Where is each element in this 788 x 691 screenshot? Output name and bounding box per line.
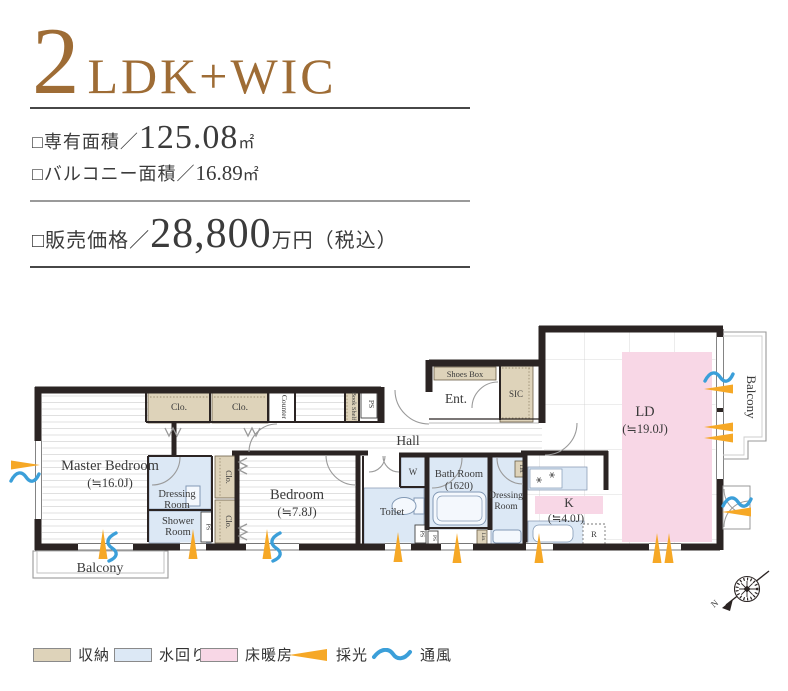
balcony-left-label: Balcony: [77, 561, 124, 576]
ld-floor-heating: [622, 352, 712, 542]
daylight-legend-icon: [287, 648, 329, 662]
kitchen-label: K: [564, 495, 574, 510]
shower-label-2: Room: [165, 527, 191, 538]
counter-label: Counter: [280, 395, 289, 420]
book-shelf-label: Book Shelf: [350, 392, 357, 421]
storage-swatch-icon: [33, 648, 71, 662]
balcony-area-row: □バルコニー面積／ 16.89 ㎡: [32, 160, 472, 186]
legend-storage-label: 収納: [78, 644, 110, 665]
unit-type: LDK+WIC: [88, 47, 337, 105]
floor-plan: Balcony Balcony: [0, 315, 788, 627]
balcony-area-label: □バルコニー面積／: [32, 160, 196, 186]
compass-arrow: [722, 599, 733, 611]
linen-label: Lin.: [480, 532, 486, 542]
unit-number: 2: [32, 18, 80, 105]
legend-storage: 収納: [33, 644, 110, 665]
closet-strip1-label: Clo.: [224, 470, 233, 484]
ld-label: LD: [635, 404, 654, 420]
linen-label: Lin.: [518, 464, 524, 474]
ps-label: PS: [431, 535, 437, 541]
legend-wind-label: 通風: [420, 644, 452, 665]
dressing2-label-1: Dressing: [489, 491, 523, 501]
bedroom-label: Bedroom: [270, 487, 325, 503]
exclusive-area-row: □専有面積／ 125.08 ㎡: [32, 119, 472, 157]
hall-label: Hall: [396, 433, 419, 448]
plan-header: 2 LDK+WIC □専有面積／ 125.08 ㎡ □バルコニー面積／ 16.8…: [32, 18, 472, 268]
divider: [30, 200, 470, 202]
balcony-area-unit: ㎡: [243, 161, 259, 185]
ld-size: (≒19.0J): [622, 422, 668, 436]
master-bedroom-size: (≒16.0J): [87, 476, 133, 490]
legend: 収納 水回り 床暖房 採光 通風: [0, 644, 788, 666]
title-underline: [30, 107, 470, 109]
price-label: □販売価格／: [32, 224, 150, 253]
ps-label: PS: [205, 524, 211, 531]
price-row: □販売価格／ 28,800 万円（税込）: [32, 210, 472, 258]
shoes-box-label: Shoes Box: [447, 369, 484, 379]
refrigerator-label: R: [591, 529, 597, 539]
wind-legend-icon: [371, 648, 413, 662]
closet2-label: Clo.: [232, 403, 248, 413]
bedroom-size: (≒7.8J): [277, 505, 316, 519]
sic-label: SIC: [509, 389, 523, 399]
water-swatch-icon: [114, 648, 152, 662]
stove-top: [530, 469, 562, 488]
closet-strip2-label: Clo.: [224, 515, 233, 529]
legend-water: 水回り: [114, 644, 207, 665]
master-bedroom-label: Master Bedroom: [61, 458, 160, 474]
ent-label: Ent.: [445, 391, 467, 406]
wic-label-2: Room: [164, 500, 190, 511]
washbasin: [493, 530, 521, 543]
price-suffix: 万円（税込）: [272, 224, 398, 253]
balcony-area-value: 16.89: [196, 161, 243, 186]
legend-heating: 床暖房: [200, 644, 293, 665]
hall-floor: [176, 423, 542, 453]
bathtub-inner: [437, 496, 482, 521]
floorplan-page: 2 LDK+WIC □専有面積／ 125.08 ㎡ □バルコニー面積／ 16.8…: [0, 0, 788, 691]
legend-daylight-label: 採光: [336, 644, 368, 665]
toilet-label: Toilet: [380, 507, 404, 518]
ps-label: PS: [367, 400, 376, 408]
compass: N: [709, 571, 769, 611]
legend-wind: 通風: [371, 644, 452, 665]
shower-label-1: Shower: [162, 516, 195, 527]
price-value: 28,800: [150, 210, 272, 258]
legend-heating-label: 床暖房: [245, 644, 293, 665]
counter-nook-floor: [296, 392, 344, 422]
legend-daylight: 採光: [287, 644, 368, 665]
area-value: 125.08: [139, 119, 239, 157]
closet1-label: Clo.: [171, 403, 187, 413]
area-label: □専有面積／: [32, 128, 139, 154]
ps-label: PS: [419, 531, 425, 538]
kitchen-size: (≒4.0J): [548, 513, 584, 525]
heating-swatch-icon: [200, 648, 238, 662]
washer-label: W: [409, 467, 418, 477]
bay-window: [723, 486, 750, 529]
bath-label-2: (1620): [445, 481, 473, 492]
wic-label-1: Dressing: [158, 489, 196, 500]
balcony-right-label: Balcony: [744, 375, 759, 419]
bath-label-1: Bath Room: [435, 469, 483, 480]
plan-title: 2 LDK+WIC: [32, 18, 472, 105]
compass-n-label: N: [709, 597, 721, 609]
area-unit: ㎡: [238, 129, 254, 153]
price-underline: [30, 266, 470, 268]
dressing2-label-2: Room: [494, 502, 518, 512]
